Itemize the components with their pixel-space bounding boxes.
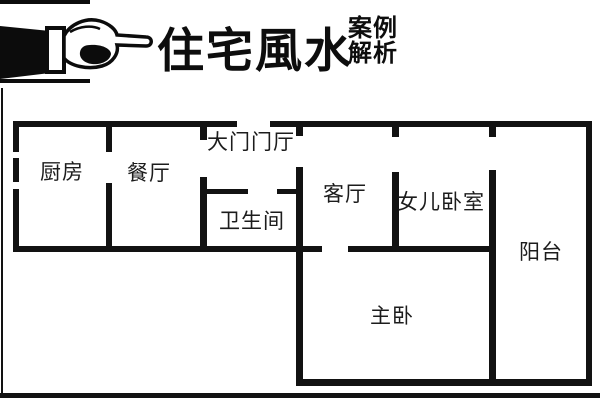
wall-segment [13, 158, 19, 182]
wall-segment [586, 121, 592, 383]
wall-segment [106, 123, 112, 152]
wall-segment [392, 127, 399, 137]
wall-segment [489, 170, 496, 383]
wall-segment [296, 127, 303, 136]
wall-segment [0, 393, 600, 398]
screenshot-root: 住宅風水 案例 解析 [0, 0, 600, 400]
wall-segment [348, 246, 496, 252]
wall-segment [13, 189, 19, 246]
wall-segment [106, 183, 112, 246]
room-label-kitchen: 厨房 [40, 156, 84, 186]
room-label-balcony: 阳台 [519, 236, 563, 266]
wall-segment [13, 246, 322, 252]
wall-segment [1, 88, 3, 398]
room-label-bathroom: 卫生间 [219, 205, 285, 235]
subtitle-line-2: 解析 [348, 41, 398, 66]
wall-segment [200, 177, 207, 246]
room-label-daughter-bedroom: 女儿卧室 [397, 186, 485, 216]
room-label-dining-room: 餐厅 [127, 157, 171, 187]
wall-segment [489, 127, 496, 137]
pointing-hand-icon [0, 0, 158, 84]
subtitle-line-1: 案例 [348, 16, 398, 41]
page-subtitle: 案例 解析 [348, 16, 398, 67]
wall-segment [270, 121, 592, 127]
wall-segment [207, 189, 248, 194]
room-label-master-bedroom: 主卧 [370, 300, 414, 330]
wall-segment [200, 121, 207, 140]
wall-segment [296, 379, 592, 386]
page-title: 住宅風水 [157, 12, 353, 81]
room-label-entry-hall: 大门门厅 [207, 126, 295, 156]
room-label-living-room: 客厅 [323, 178, 367, 208]
wall-segment [296, 167, 303, 386]
wall-segment [13, 121, 19, 152]
